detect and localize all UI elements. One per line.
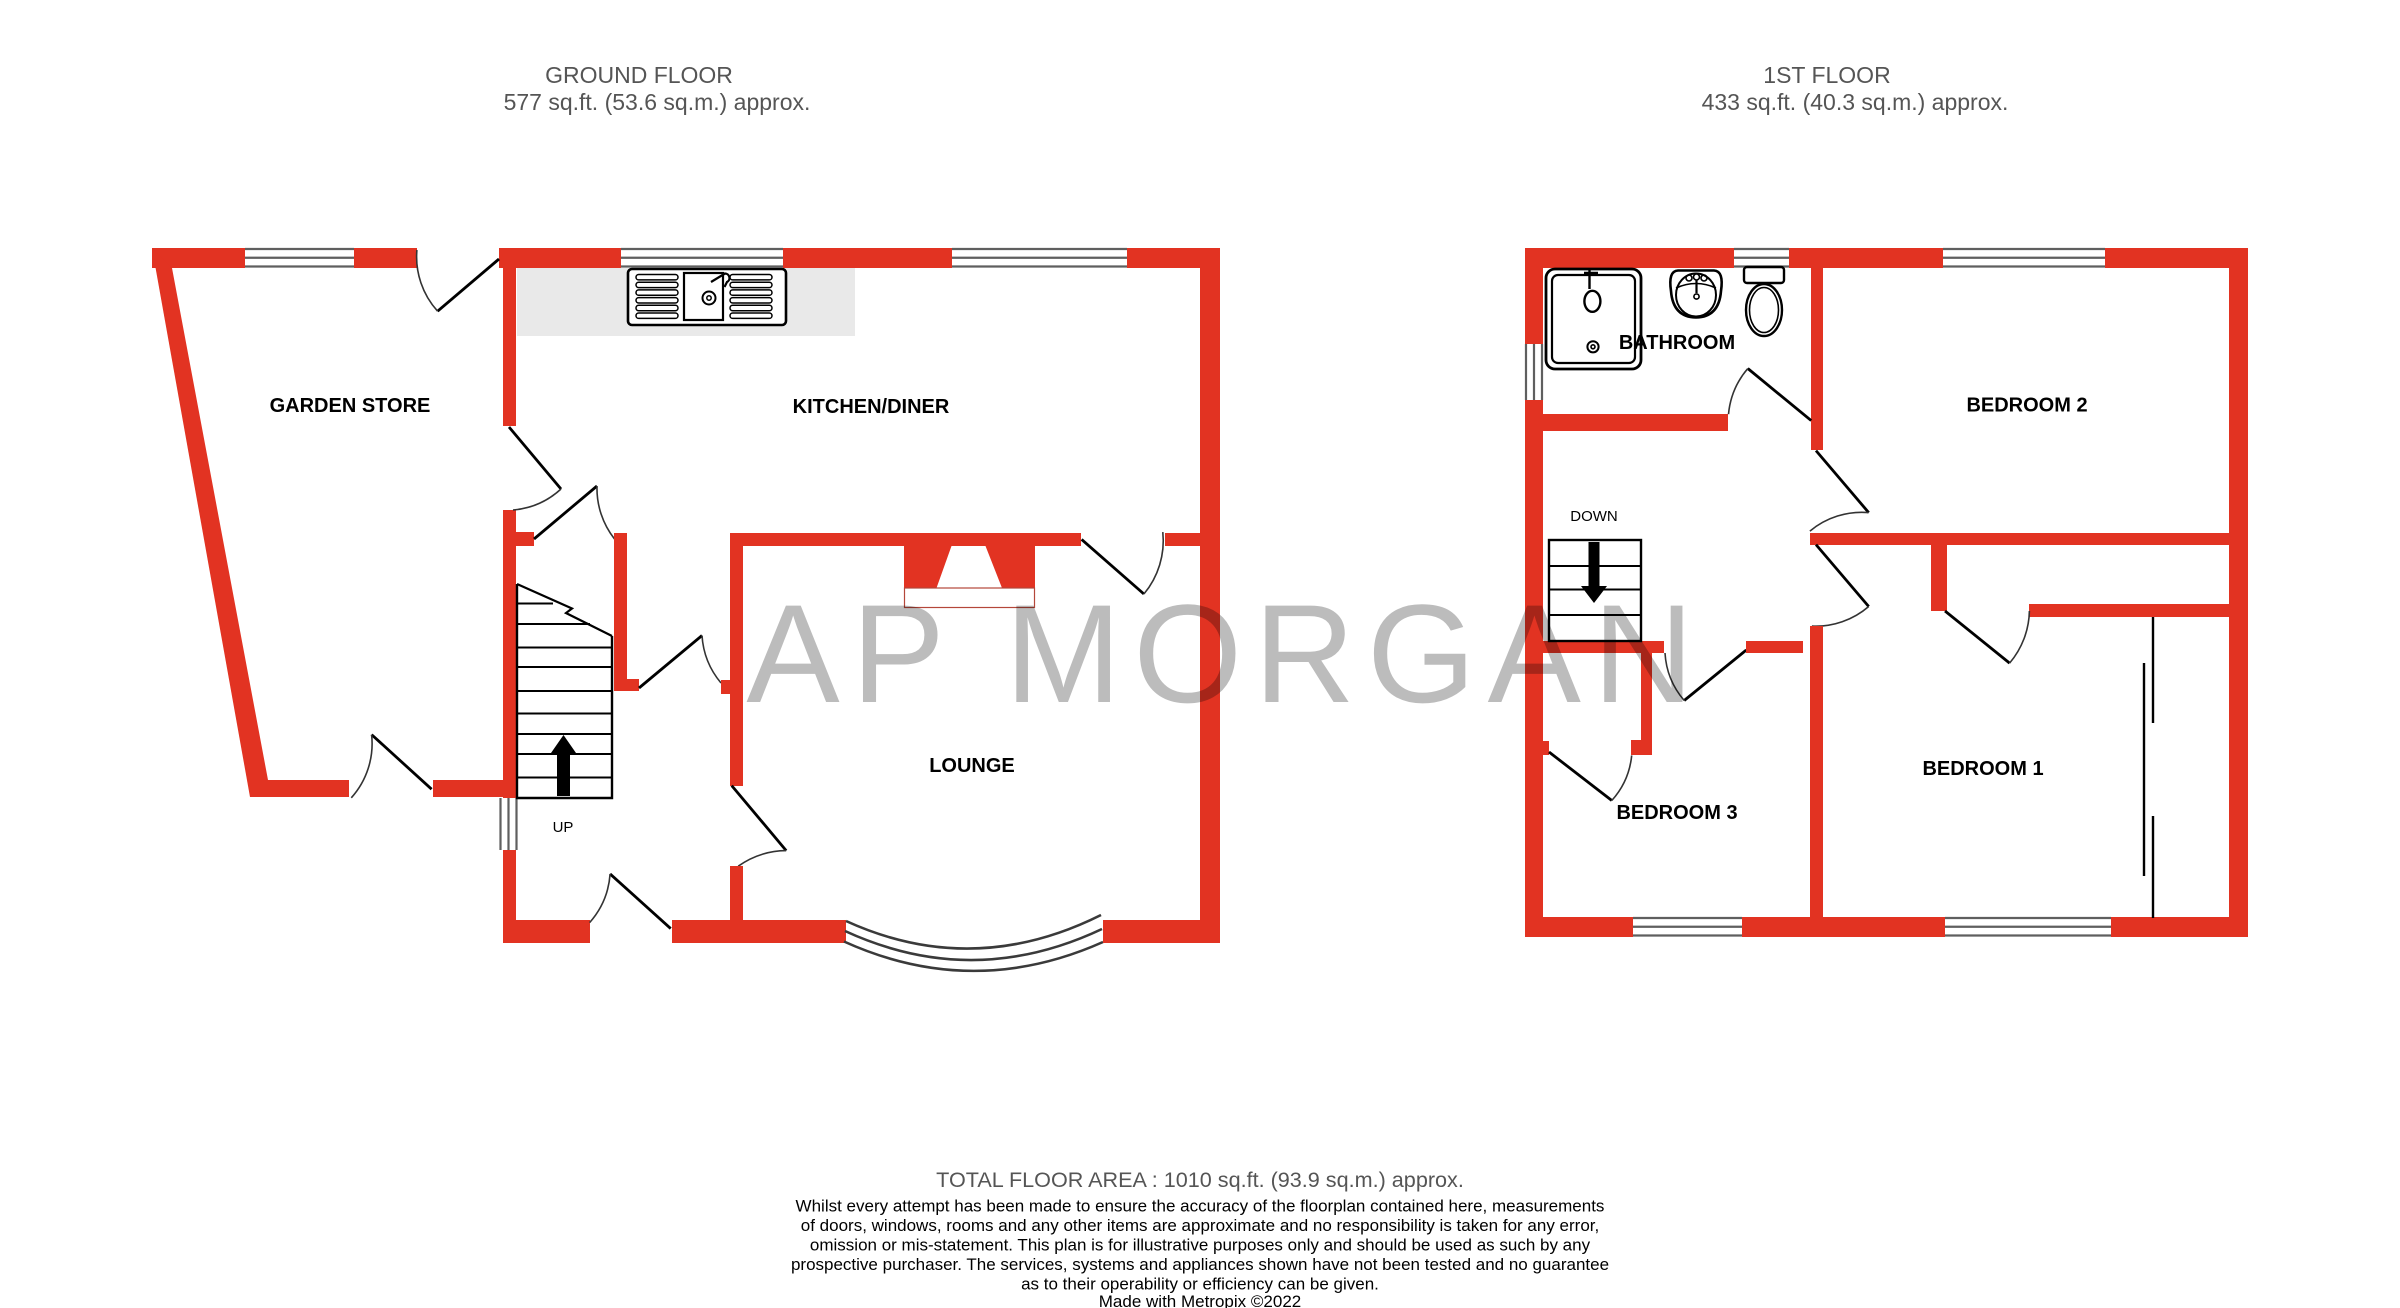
svg-text:433 sq.ft. (40.3 sq.m.) approx: 433 sq.ft. (40.3 sq.m.) approx.	[1702, 89, 2009, 115]
svg-text:BEDROOM 1: BEDROOM 1	[1922, 758, 2043, 780]
svg-text:as to their operability or eff: as to their operability or efficiency ca…	[1021, 1274, 1379, 1293]
svg-text:BEDROOM 2: BEDROOM 2	[1966, 395, 2087, 417]
svg-text:LOUNGE: LOUNGE	[929, 755, 1015, 777]
svg-text:1ST FLOOR: 1ST FLOOR	[1763, 62, 1890, 88]
svg-text:BEDROOM 3: BEDROOM 3	[1616, 802, 1737, 824]
svg-text:GARDEN STORE: GARDEN STORE	[270, 395, 431, 417]
svg-text:TOTAL FLOOR AREA : 1010 sq.ft.: TOTAL FLOOR AREA : 1010 sq.ft. (93.9 sq.…	[936, 1167, 1464, 1192]
svg-text:prospective purchaser. The ser: prospective purchaser. The services, sys…	[791, 1255, 1609, 1274]
svg-text:Whilst every attempt has been: Whilst every attempt has been made to en…	[796, 1196, 1605, 1215]
svg-text:GROUND FLOOR: GROUND FLOOR	[545, 62, 733, 88]
svg-text:BATHROOM: BATHROOM	[1619, 332, 1735, 354]
svg-text:AP MORGAN: AP MORGAN	[746, 575, 1705, 732]
svg-text:KITCHEN/DINER: KITCHEN/DINER	[793, 396, 950, 418]
svg-text:of doors, windows, rooms and a: of doors, windows, rooms and any other i…	[801, 1216, 1599, 1235]
svg-text:Made with Metropix ©2022: Made with Metropix ©2022	[1099, 1292, 1301, 1308]
svg-text:577 sq.ft. (53.6 sq.m.) approx: 577 sq.ft. (53.6 sq.m.) approx.	[504, 89, 811, 115]
svg-text:UP: UP	[553, 819, 574, 836]
svg-text:omission or mis-statement. Thi: omission or mis-statement. This plan is …	[810, 1235, 1591, 1254]
svg-text:DOWN: DOWN	[1570, 508, 1618, 525]
